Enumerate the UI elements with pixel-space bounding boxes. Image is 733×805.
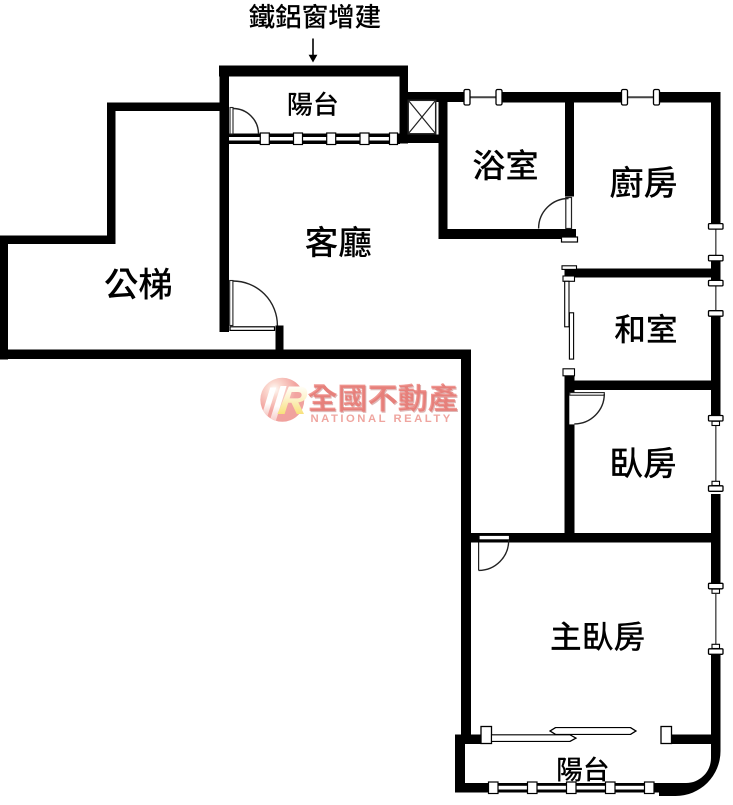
svg-text:NATIONAL REALTY: NATIONAL REALTY <box>311 413 453 425</box>
